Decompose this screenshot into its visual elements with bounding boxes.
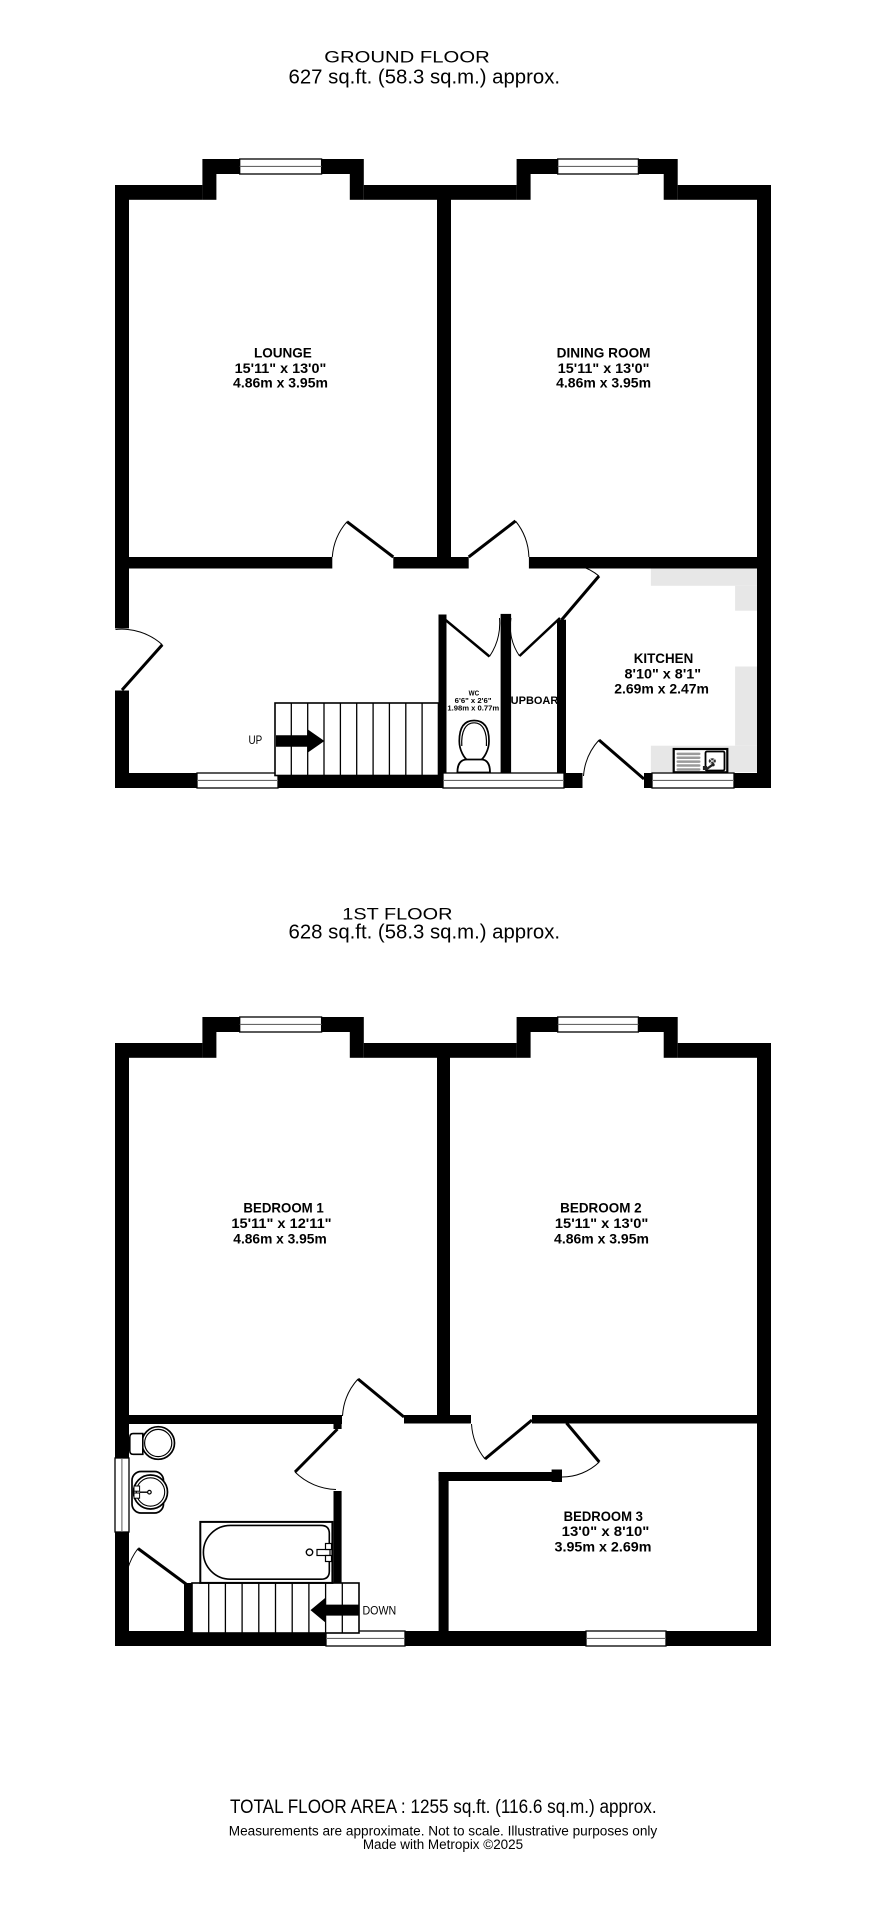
svg-text:DINING ROOM: DINING ROOM (557, 345, 651, 361)
svg-text:UP: UP (249, 733, 263, 747)
svg-text:Made with Metropix ©2025: Made with Metropix ©2025 (363, 1837, 523, 1852)
svg-text:3.95m x 2.69m: 3.95m x 2.69m (555, 1538, 652, 1554)
svg-text:2.69m x 2.47m: 2.69m x 2.47m (614, 681, 709, 697)
svg-text:13'0" x 8'10": 13'0" x 8'10" (562, 1523, 650, 1539)
svg-text:GROUND FLOOR: GROUND FLOOR (324, 48, 489, 67)
svg-text:628 sq.ft. (58.3 sq.m.) approx: 628 sq.ft. (58.3 sq.m.) approx. (289, 922, 561, 944)
svg-text:4.86m x 3.95m: 4.86m x 3.95m (233, 1230, 326, 1246)
svg-text:1.98m x 0.77m: 1.98m x 0.77m (447, 704, 499, 713)
svg-text:4.86m x 3.95m: 4.86m x 3.95m (554, 1230, 649, 1246)
svg-text:BEDROOM 1: BEDROOM 1 (243, 1200, 324, 1216)
svg-text:BEDROOM 3: BEDROOM 3 (564, 1508, 643, 1524)
svg-text:DOWN: DOWN (363, 1604, 397, 1618)
svg-text:627 sq.ft. (58.3 sq.m.) approx: 627 sq.ft. (58.3 sq.m.) approx. (289, 67, 561, 89)
svg-text:4.86m x 3.95m: 4.86m x 3.95m (556, 375, 651, 391)
svg-text:KITCHEN: KITCHEN (634, 650, 694, 666)
svg-text:BEDROOM 2: BEDROOM 2 (560, 1200, 642, 1216)
svg-text:8'10" x 8'1": 8'10" x 8'1" (625, 665, 702, 681)
svg-text:15'11" x 12'11": 15'11" x 12'11" (231, 1215, 331, 1231)
svg-text:CUPBOARD: CUPBOARD (503, 695, 567, 707)
svg-text:TOTAL FLOOR AREA : 1255 sq.ft.: TOTAL FLOOR AREA : 1255 sq.ft. (116.6 sq… (230, 1797, 657, 1818)
svg-text:15'11" x 13'0": 15'11" x 13'0" (555, 1215, 648, 1231)
svg-text:4.86m x 3.95m: 4.86m x 3.95m (233, 375, 328, 391)
svg-text:LOUNGE: LOUNGE (254, 345, 312, 361)
